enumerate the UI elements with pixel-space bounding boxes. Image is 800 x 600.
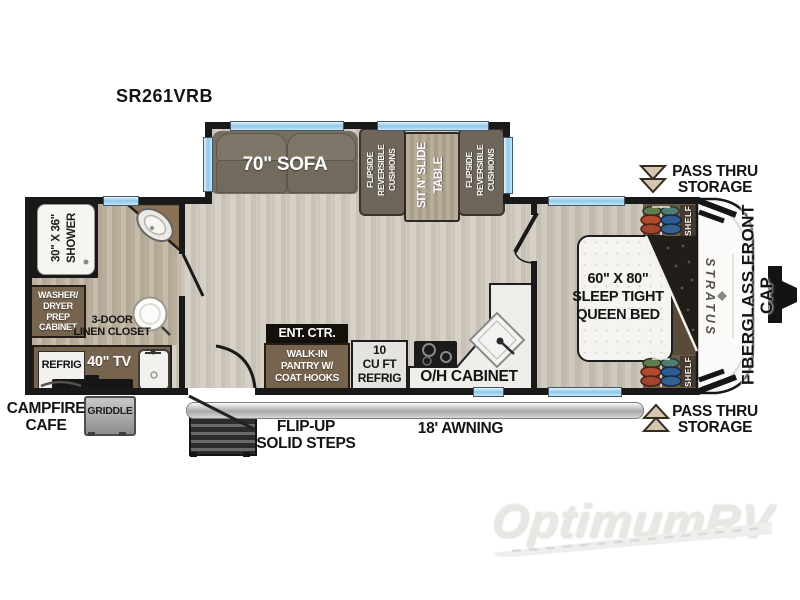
oh-cabinet-label: O/H CABINET — [406, 365, 532, 388]
model-title: SR261VRB — [116, 86, 246, 108]
shower-label: 30" X 36" SHOWER — [34, 201, 96, 276]
fiberglass-front-cap-label: FIBERGLASS FRONT CAP — [746, 188, 770, 402]
stratus-logo: STRATUS — [701, 242, 717, 354]
window — [548, 196, 625, 206]
wall — [25, 388, 188, 395]
shelf-bottom-label: SHELF — [680, 356, 697, 387]
shelf-top-label: SHELF — [680, 205, 697, 236]
window — [473, 387, 504, 397]
exterior-refrig-label: REFRIG — [38, 352, 85, 378]
campfire-sink-icon — [138, 349, 170, 391]
tv-label: 40" TV — [80, 350, 138, 376]
window — [548, 387, 622, 397]
bathroom-wall — [179, 200, 185, 254]
ent-ctr-label: ENT. CTR. — [266, 324, 348, 343]
queen-bed-label: 60" X 80" SLEEP TIGHT QUEEN BED — [572, 262, 664, 332]
pantry-label: WALK-IN PANTRY W/ COAT HOOKS — [264, 343, 350, 390]
awning-label: 18' AWNING — [388, 418, 533, 440]
pass-thru-top-label: PASS THRU STORAGE — [664, 161, 766, 199]
window — [503, 137, 513, 194]
table-label: SIT N' SLIDE TABLE — [404, 132, 458, 218]
linen-closet-label: 3-DOOR LINEN CLOSET — [66, 311, 158, 341]
window — [103, 196, 139, 206]
dinette-bench-right-label: FLIPSIDE REVERSIBLE CUSHIONS — [458, 128, 503, 212]
campfire-cafe-label: CAMPFIRE CAFE — [0, 397, 92, 437]
dinette-bench-left-label: FLIPSIDE REVERSIBLE CUSHIONS — [359, 128, 404, 212]
pass-thru-bottom-label: PASS THRU STORAGE — [662, 401, 768, 439]
main-refrig-label: 10 CU FT REFRIG — [351, 340, 408, 390]
sofa-label: 70" SOFA — [212, 136, 358, 194]
bedroom-wall — [531, 200, 537, 215]
floorplan-canvas: OptimumRV SR261VRB 70" SOFA FLIPSIDE REV… — [0, 0, 800, 600]
bathroom-wall — [179, 296, 185, 390]
window — [230, 121, 344, 131]
flip-up-steps-label: FLIP-UP SOLID STEPS — [246, 415, 366, 455]
